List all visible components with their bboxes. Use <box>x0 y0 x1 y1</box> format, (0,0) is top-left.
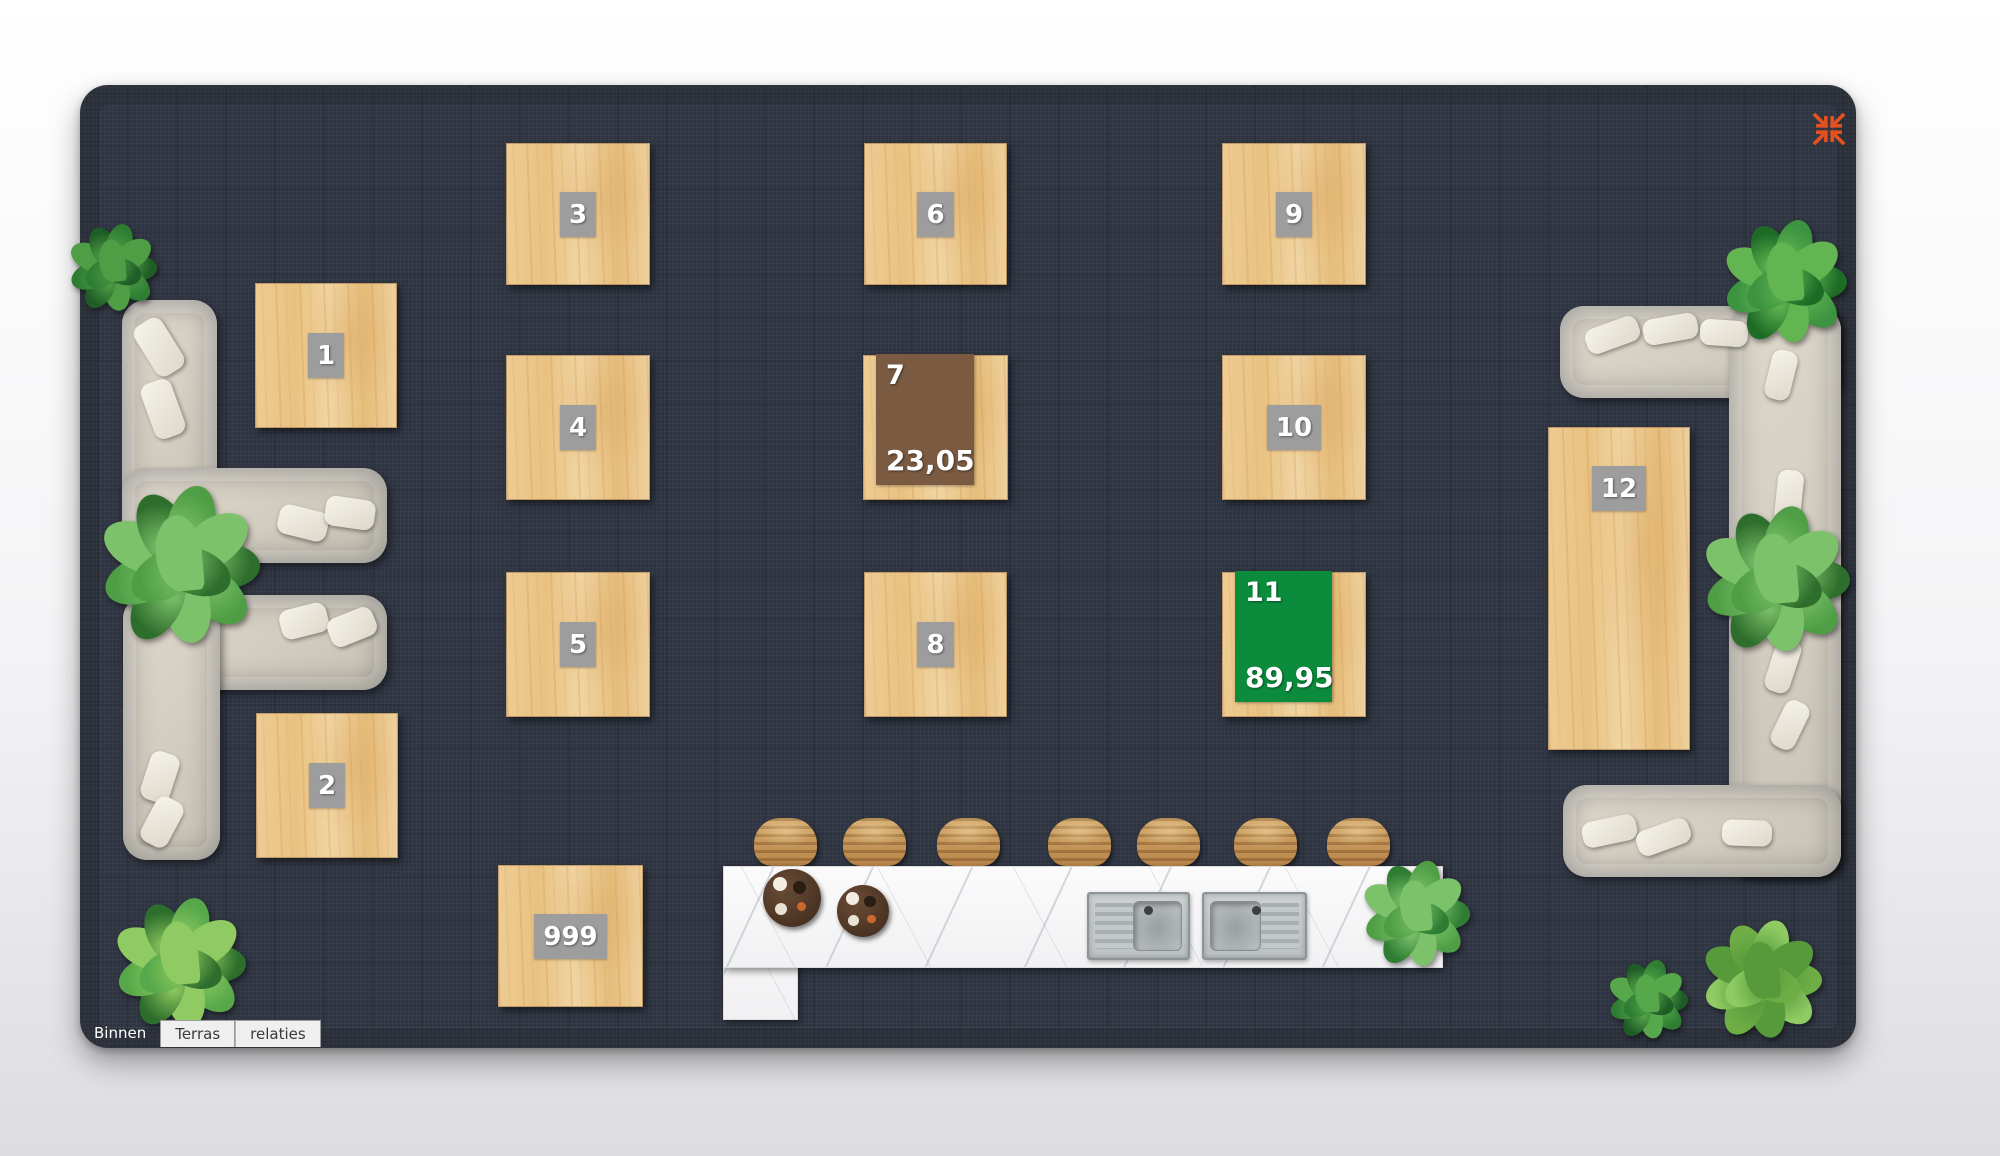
table-number-badge: 8 <box>917 622 953 667</box>
table-7[interactable]: 723,05 <box>863 355 1008 500</box>
bar-stool <box>1137 818 1200 866</box>
plant <box>1362 860 1470 968</box>
table-10[interactable]: 10 <box>1222 355 1366 500</box>
table-number-badge: 12 <box>1592 466 1646 511</box>
serving-tray <box>837 885 889 937</box>
plant <box>114 898 246 1030</box>
bar-stool <box>937 818 1000 866</box>
table-8[interactable]: 8 <box>864 572 1007 717</box>
table-9[interactable]: 9 <box>1222 143 1366 285</box>
sofa-pillow <box>1722 819 1773 847</box>
table-order-overlay: 1189,95 <box>1235 571 1332 702</box>
plant <box>100 486 260 646</box>
table-12[interactable]: 12 <box>1548 427 1690 750</box>
bar-stool <box>1048 818 1111 866</box>
table-amount: 89,95 <box>1245 661 1334 694</box>
bar-stool <box>1327 818 1390 866</box>
bar-stool <box>754 818 817 866</box>
sink <box>1202 892 1307 960</box>
table-number-badge: 1 <box>308 333 344 378</box>
table-number-badge: 5 <box>560 622 596 667</box>
sink-basin <box>1133 901 1183 951</box>
plant <box>69 224 157 312</box>
plant <box>1702 920 1822 1040</box>
table-number-badge: 6 <box>917 192 953 237</box>
bar-stool <box>1234 818 1297 866</box>
table-number-badge: 10 <box>1267 405 1321 450</box>
plant <box>1702 506 1850 654</box>
tab-terras[interactable]: Terras <box>160 1020 235 1047</box>
plant <box>1723 220 1847 344</box>
table-number-badge: 2 <box>309 763 345 808</box>
table-5[interactable]: 5 <box>506 572 650 717</box>
sink-drainboard <box>1261 903 1299 949</box>
table-1[interactable]: 1 <box>255 283 397 428</box>
table-3[interactable]: 3 <box>506 143 650 285</box>
table-number-badge: 9 <box>1276 192 1312 237</box>
tab-relaties[interactable]: relaties <box>235 1020 321 1047</box>
tab-binnen[interactable]: Binnen <box>80 1020 160 1047</box>
page-canvas: 123456723,0589101189,9512999 BinnenTerra… <box>0 0 2000 1156</box>
table-2[interactable]: 2 <box>256 713 398 858</box>
table-number: 11 <box>1245 577 1283 608</box>
table-number-badge: 4 <box>560 405 596 450</box>
floor-tab-bar: BinnenTerrasrelaties <box>80 1020 321 1047</box>
table-order-overlay: 723,05 <box>876 354 974 485</box>
sink-drainboard <box>1095 903 1133 949</box>
collapse-icon[interactable] <box>1812 112 1846 146</box>
serving-tray <box>763 869 821 927</box>
bar-counter <box>723 866 1443 968</box>
table-11[interactable]: 1189,95 <box>1222 572 1366 717</box>
table-4[interactable]: 4 <box>506 355 650 500</box>
table-number-badge: 999 <box>534 914 606 959</box>
bar-stool <box>843 818 906 866</box>
table-amount: 23,05 <box>886 444 975 477</box>
plant <box>1608 960 1688 1040</box>
table-number-badge: 3 <box>560 192 596 237</box>
sink-faucet <box>1252 906 1261 915</box>
table-number: 7 <box>886 360 905 391</box>
sink <box>1087 892 1190 960</box>
table-6[interactable]: 6 <box>864 143 1007 285</box>
table-999[interactable]: 999 <box>498 865 643 1007</box>
floor-plan: 123456723,0589101189,9512999 BinnenTerra… <box>80 85 1856 1048</box>
